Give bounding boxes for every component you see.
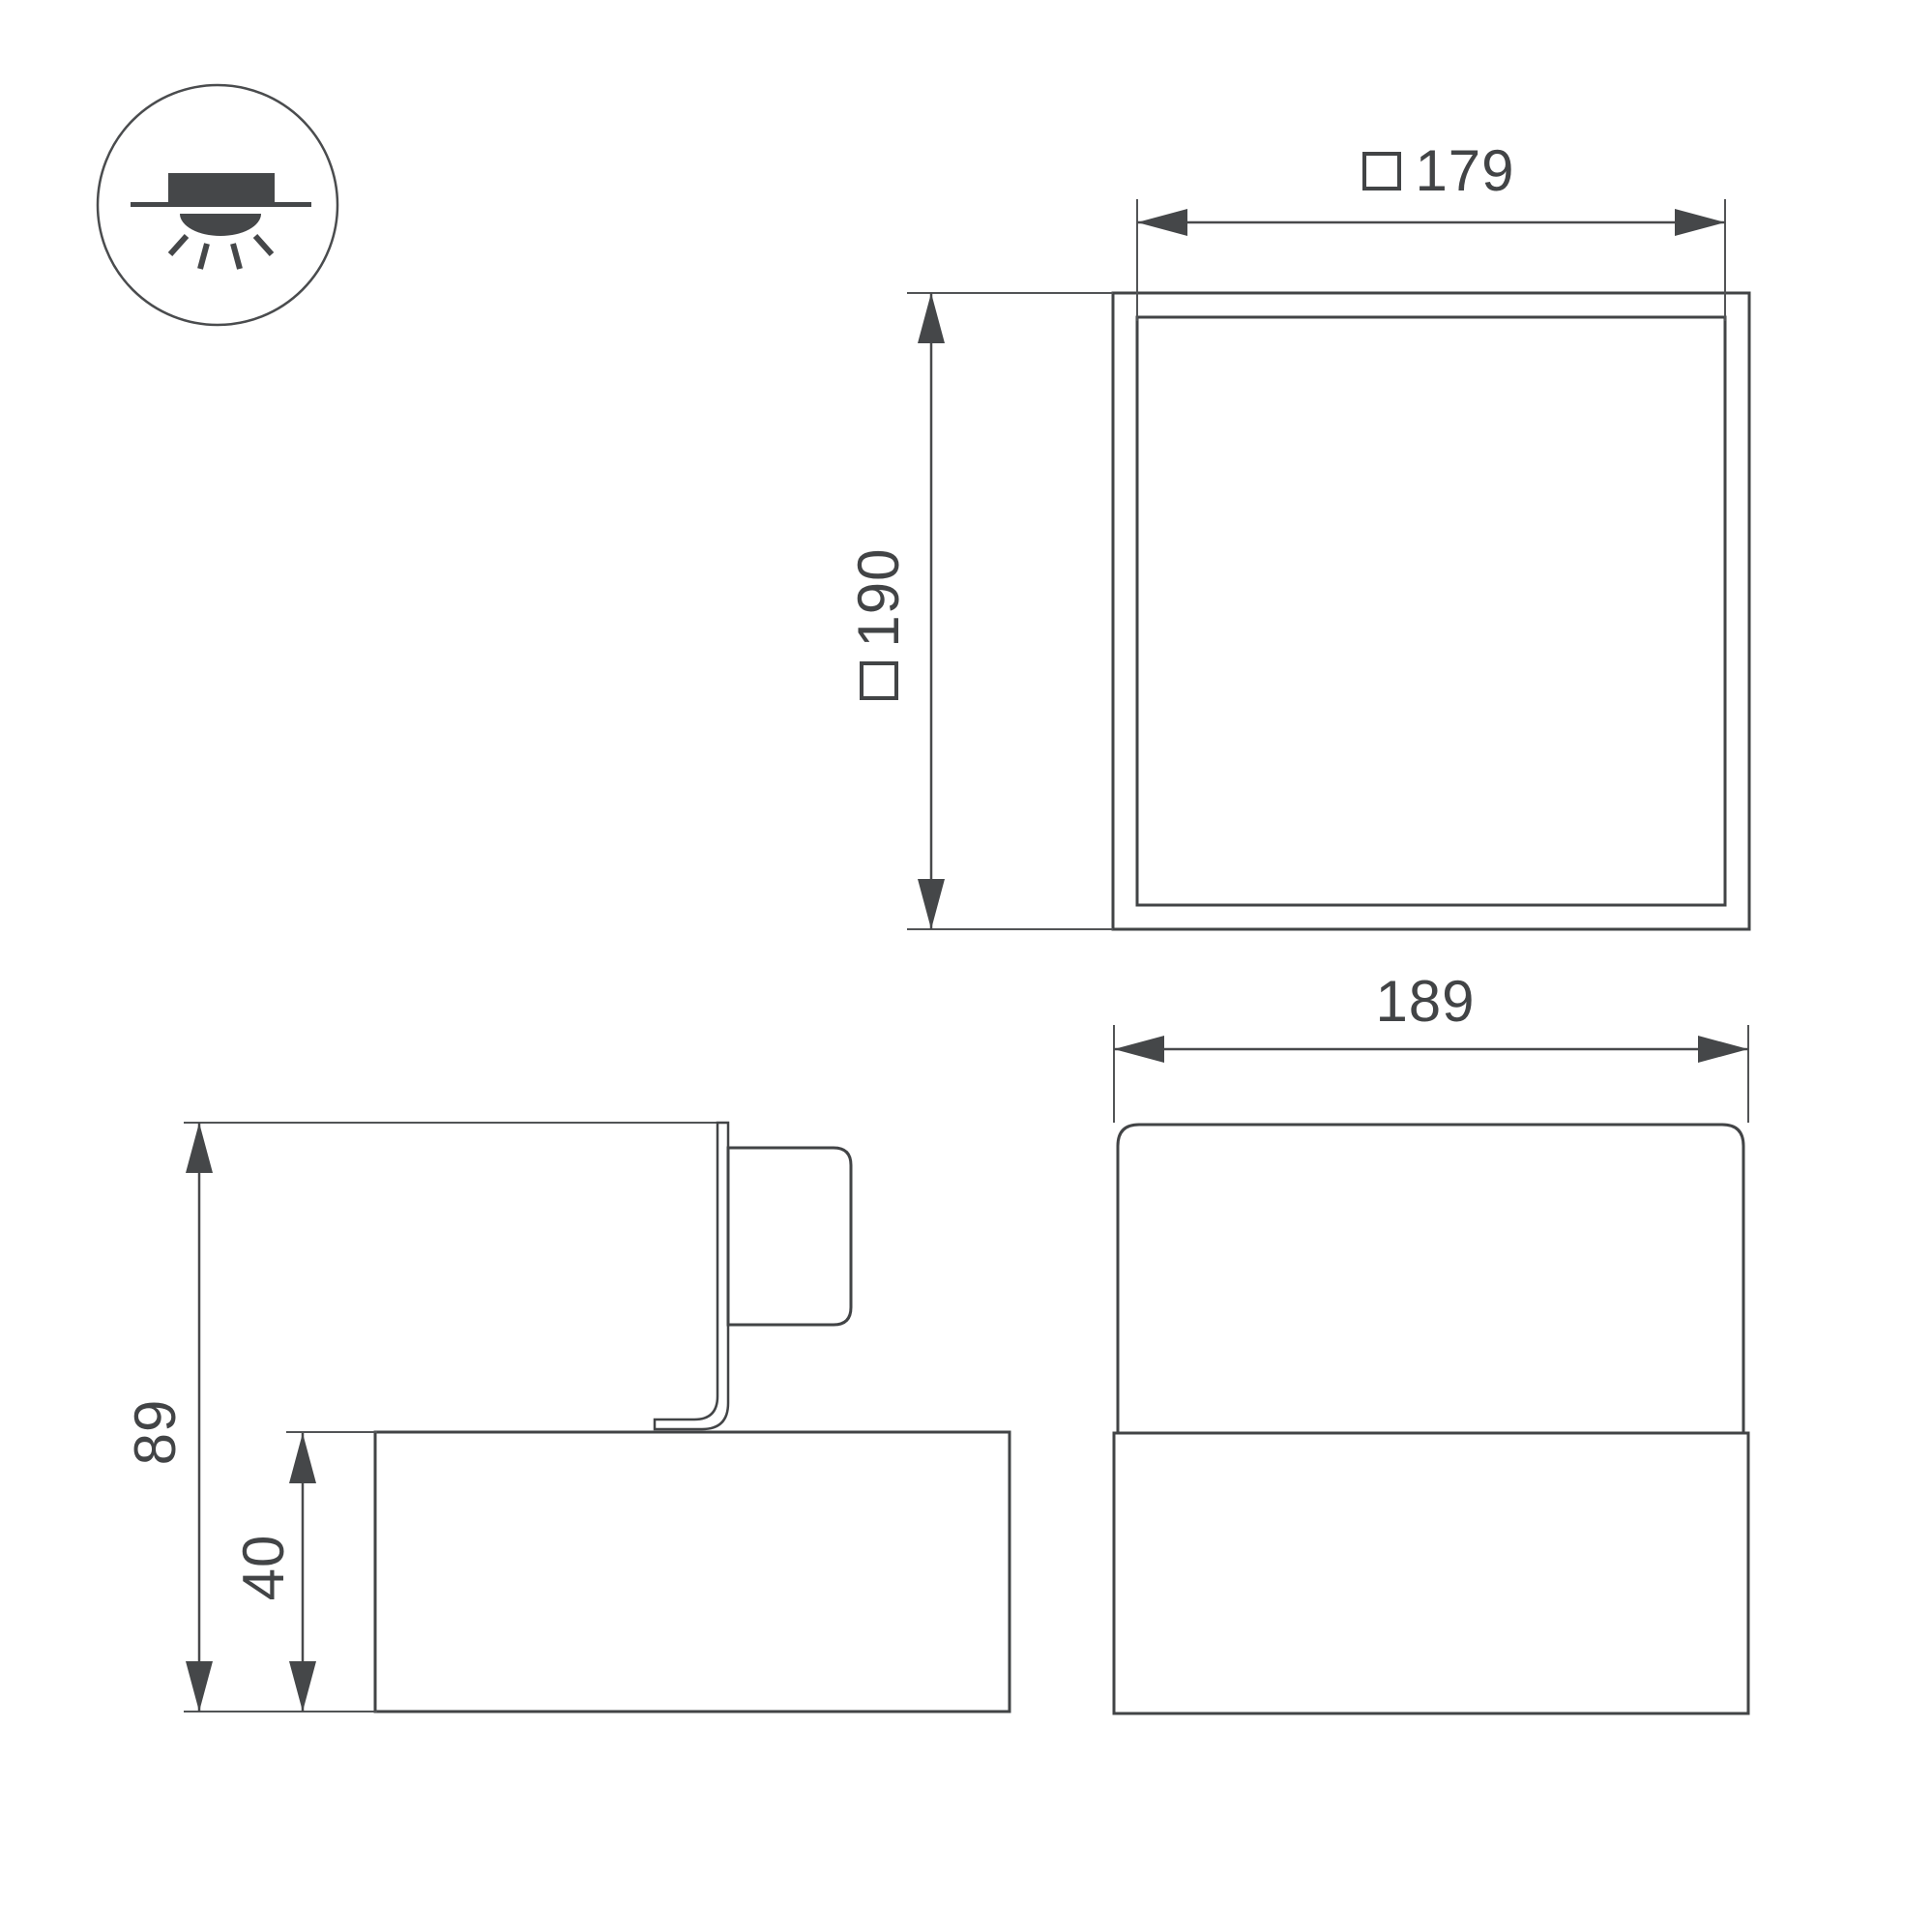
icon-light-rays [170, 236, 272, 269]
dim-side-total-height-lines [186, 1123, 213, 1712]
front-view [1114, 1025, 1748, 1713]
technical-drawing: 179 190 189 89 40 [0, 0, 1932, 1932]
square-symbol [1362, 152, 1401, 190]
dim-label-top-width: 179 [1361, 142, 1516, 200]
dim-value-top-size: 190 [850, 547, 908, 647]
dim-value-side-total-height: 89 [127, 1399, 185, 1466]
dim-label-top-size: 190 [850, 546, 908, 701]
dim-value-side-base-height: 40 [235, 1535, 293, 1601]
side-view [184, 1123, 1010, 1712]
front-view-base [1114, 1433, 1748, 1713]
dim-label-side-total-height: 89 [127, 1393, 185, 1471]
icon-ceiling-line [131, 202, 311, 207]
dim-top-height-lines [907, 293, 1113, 929]
dim-value-front-width: 189 [1375, 973, 1475, 1031]
top-view [907, 199, 1749, 929]
front-view-housing [1118, 1125, 1743, 1433]
square-symbol [860, 661, 898, 700]
drawing-canvas [0, 0, 1932, 1932]
top-view-inner-square [1137, 317, 1725, 905]
side-view-mounting-bracket [655, 1123, 728, 1429]
mount-type-icon [98, 85, 337, 325]
side-view-base [375, 1432, 1010, 1712]
dim-front-width-lines [1114, 1025, 1748, 1123]
dim-label-side-base-height: 40 [235, 1529, 293, 1606]
side-view-driver-box [728, 1148, 851, 1325]
icon-fixture-body [168, 173, 275, 205]
dim-label-front-width: 189 [1367, 973, 1483, 1031]
dim-value-top-width: 179 [1415, 142, 1514, 200]
icon-light-dome [180, 214, 261, 236]
